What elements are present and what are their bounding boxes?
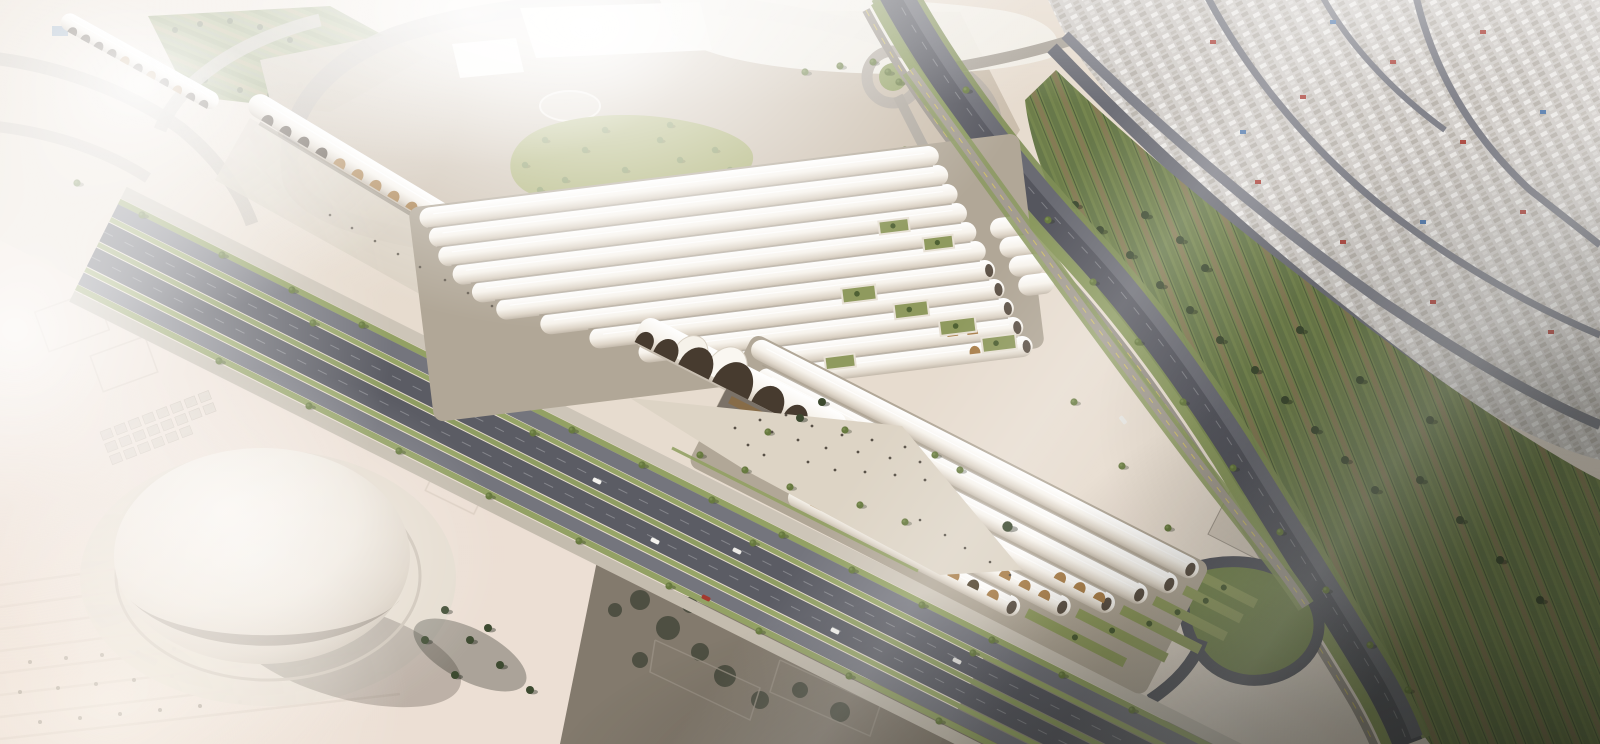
small-shed bbox=[452, 38, 524, 78]
render-scene bbox=[0, 0, 1600, 744]
aerial-architectural-rendering bbox=[0, 0, 1600, 744]
plaza-circle bbox=[540, 91, 600, 121]
